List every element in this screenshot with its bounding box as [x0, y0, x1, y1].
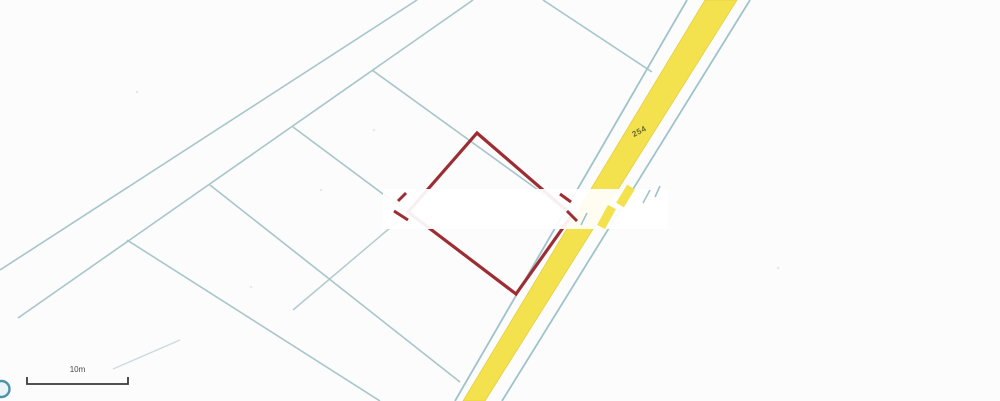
parcel-boundary-line [0, 0, 417, 270]
parcel-boundary-line [372, 70, 563, 208]
scale-bar: 10m [27, 365, 128, 384]
parcel-boundary-line [18, 0, 473, 318]
cadastral-map-canvas[interactable]: 254 10m [0, 0, 1000, 401]
cadastral-map-view[interactable]: 254 10m [0, 0, 1000, 401]
noise-speck [777, 267, 779, 269]
parcel-boundary-line [127, 240, 380, 401]
noise-speck [320, 189, 322, 191]
parcel-boundary-line [293, 222, 397, 310]
scale-bar-label: 10m [70, 365, 86, 374]
noise-speck [373, 129, 375, 131]
scale-bar-line [27, 377, 128, 384]
parcel-boundary-line [543, 0, 652, 72]
noise-speck [250, 286, 252, 288]
parcel-boundary-line [113, 340, 180, 369]
erasure-band [383, 186, 668, 229]
logo-circle-icon [0, 381, 10, 397]
noise-speck [136, 91, 138, 93]
